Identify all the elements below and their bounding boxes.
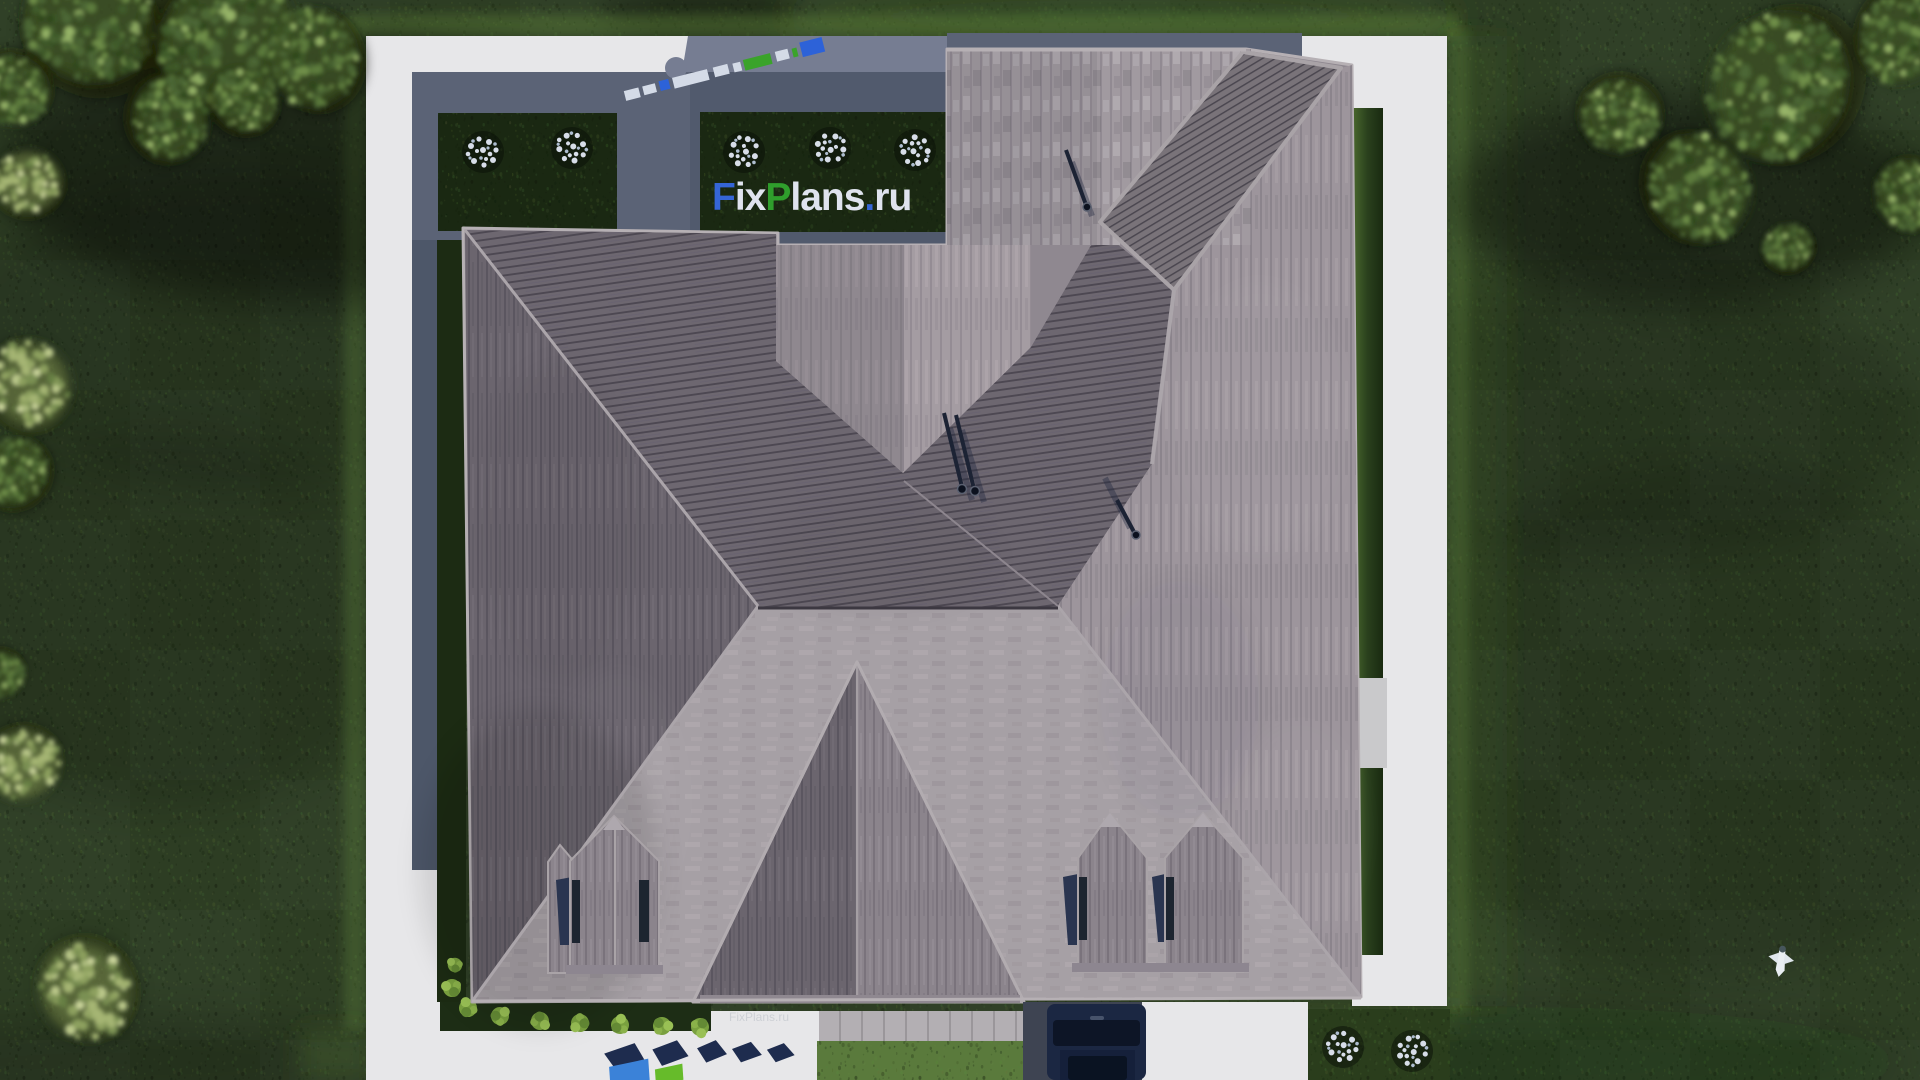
svg-text:FixPlans.ru: FixPlans.ru — [729, 1010, 789, 1024]
svg-text:FixPlans.ru: FixPlans.ru — [712, 176, 911, 219]
